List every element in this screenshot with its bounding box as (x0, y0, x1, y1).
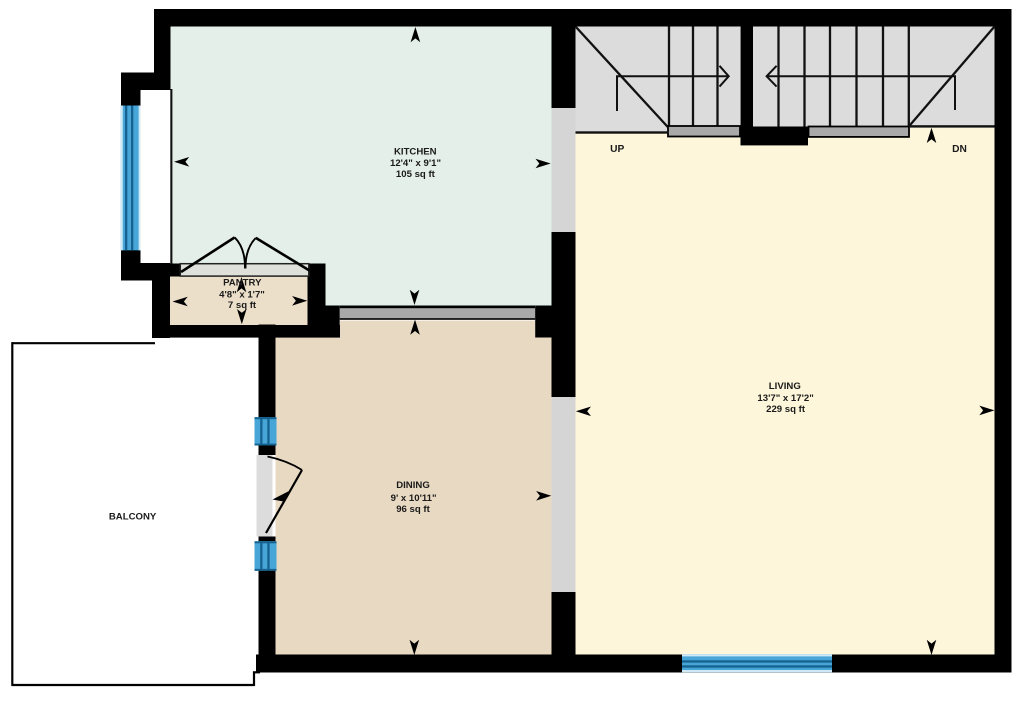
svg-text:UP: UP (610, 144, 624, 155)
svg-text:13'7" x 17'2": 13'7" x 17'2" (757, 393, 813, 404)
svg-text:BALCONY: BALCONY (109, 511, 157, 522)
svg-text:DN: DN (952, 144, 967, 155)
svg-text:12'4" x 9'1": 12'4" x 9'1" (390, 158, 441, 169)
svg-text:KITCHEN: KITCHEN (394, 146, 437, 157)
svg-text:PANTRY: PANTRY (223, 277, 262, 288)
svg-text:7 sq ft: 7 sq ft (228, 300, 257, 311)
svg-text:4'8" x 1'7": 4'8" x 1'7" (219, 290, 265, 301)
svg-text:105 sq ft: 105 sq ft (396, 169, 436, 180)
svg-text:96 sq ft: 96 sq ft (396, 504, 430, 515)
svg-text:DINING: DINING (396, 480, 430, 491)
svg-text:9' x 10'11": 9' x 10'11" (391, 493, 437, 504)
svg-text:LIVING: LIVING (769, 381, 801, 392)
svg-text:229 sq ft: 229 sq ft (766, 404, 806, 415)
